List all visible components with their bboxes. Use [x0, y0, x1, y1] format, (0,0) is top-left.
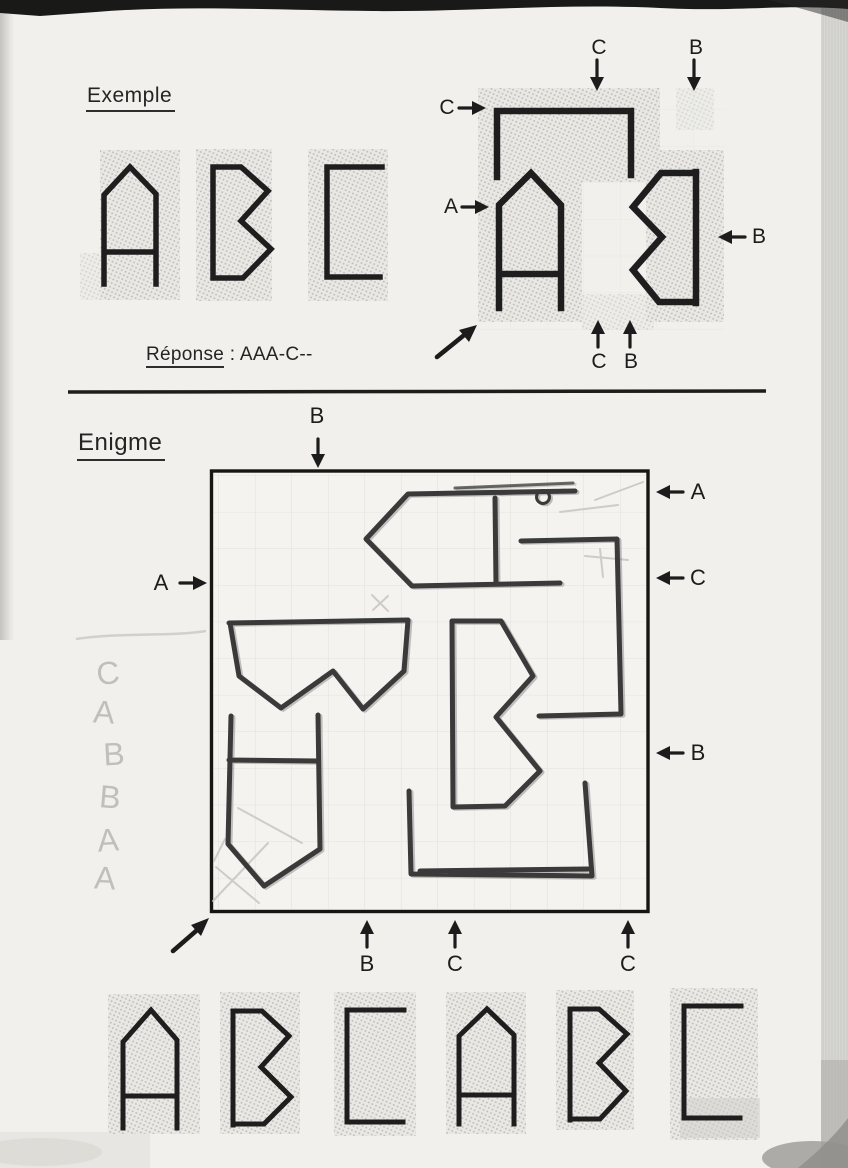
enigme-bottom-arrow-c2-label: C	[617, 951, 639, 977]
enigme-bottom-arrow-c1-label: C	[444, 951, 466, 977]
pencil-note-6: A	[84, 859, 126, 898]
example-answer-label: Réponse	[146, 344, 224, 368]
example-bottom-arrow-c-label: C	[588, 350, 610, 374]
example-grid-faint-squares	[478, 88, 725, 330]
enigme-arrow-bottom-c2	[621, 920, 635, 947]
enigme-arrow-right-a	[656, 485, 683, 499]
pencil-note-1: C	[86, 653, 130, 694]
example-answer-separator: :	[224, 344, 240, 365]
example-arrow-top-c	[590, 60, 604, 91]
enigme-top-arrow-b-label: B	[306, 403, 328, 429]
example-start-diagonal-arrow	[437, 325, 477, 357]
scan-right-band	[821, 0, 848, 1168]
enigme-left-arrow-a-label: A	[150, 570, 172, 596]
pencil-note-3: B	[93, 735, 135, 774]
section-divider	[68, 391, 766, 392]
paper-crease	[76, 631, 206, 639]
enigme-section-title: Enigme	[77, 429, 165, 461]
pencil-note-4: B	[88, 777, 131, 817]
example-section-title: Exemple	[86, 84, 175, 112]
enigme-start-diagonal-arrow	[173, 918, 209, 951]
scan-left-shadow	[0, 0, 14, 640]
enigme-right-arrow-b-label: B	[687, 740, 709, 766]
example-top-arrow-c-label: C	[588, 36, 610, 60]
enigme-arrow-top-b	[311, 439, 325, 468]
enigme-right-arrow-a-label: A	[687, 479, 709, 505]
enigme-arrow-bottom-c1	[448, 920, 462, 947]
pencil-note-5: A	[87, 821, 129, 861]
scan-top-edge	[0, 0, 848, 16]
enigme-answer-letters	[123, 1006, 741, 1128]
enigme-arrow-right-b	[656, 746, 683, 760]
enigme-right-arrow-c-label: C	[687, 565, 709, 591]
example-arrow-top-b	[687, 60, 701, 91]
scanned-page: Exemple C B C A B C B Réponse : AAA-C-- …	[0, 0, 848, 1168]
enigme-bottom-arrow-b-label: B	[356, 951, 378, 977]
enigme-arrow-right-c	[656, 571, 683, 585]
example-answer-line: Réponse : AAA-C--	[146, 344, 313, 366]
example-right-arrow-b-label: B	[748, 225, 770, 249]
scan-artwork	[0, 0, 848, 1168]
example-top-arrow-b-label: B	[685, 36, 707, 60]
enigme-arrow-bottom-b	[360, 920, 374, 947]
example-left-arrow-c-label: C	[436, 96, 458, 120]
example-answer-value: AAA-C--	[240, 344, 313, 365]
enigme-arrow-left-a	[180, 576, 207, 590]
pencil-note-2: A	[83, 693, 125, 733]
example-left-arrow-a-label: A	[440, 195, 462, 219]
example-bottom-arrow-b-label: B	[620, 350, 642, 374]
